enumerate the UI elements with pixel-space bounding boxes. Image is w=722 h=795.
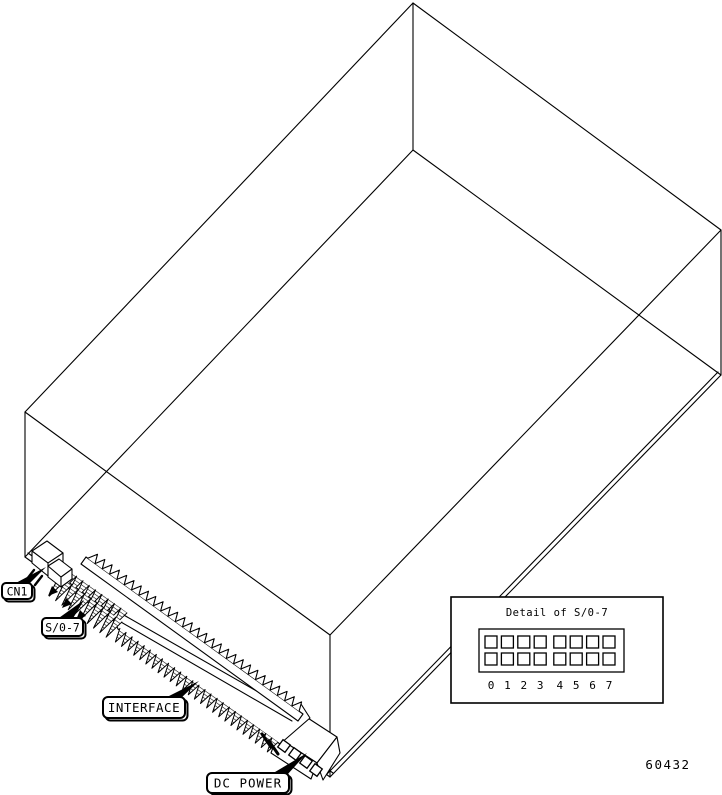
jumper-position-label-5: 5 [573, 679, 580, 692]
jumper-pin-7-row2 [603, 653, 615, 665]
jumper-pin-4-row1 [554, 636, 566, 648]
jumper-pin-7-row1 [603, 636, 615, 648]
s07-label: S/0-7 [45, 621, 80, 635]
jumper-pin-4-row2 [554, 653, 566, 665]
callout-cn1: CN1 [2, 567, 46, 602]
jumper-position-label-0: 0 [488, 679, 495, 692]
jumper-pin-3-row2 [534, 653, 546, 665]
cn1-label: CN1 [7, 585, 28, 599]
cn1-pin-2 [35, 576, 42, 585]
pin-header-row [81, 554, 303, 721]
jumper-pin-6-row2 [587, 653, 599, 665]
jumper-pin-2-row1 [518, 636, 530, 648]
edge-top-front-right [330, 230, 721, 635]
isometric-drive-diagram: CN1 S/0-7 INTERFACE DC POWER Detail of S… [0, 0, 722, 795]
figure-canvas: CN1 S/0-7 INTERFACE DC POWER Detail of S… [0, 0, 722, 795]
jumper-pin-2-row2 [518, 653, 530, 665]
jumper-pin-1-row2 [501, 653, 513, 665]
edge-bottom-rear-right [413, 150, 721, 375]
interface-label: INTERFACE [108, 700, 180, 715]
edge-top-left [25, 3, 413, 412]
jumper-position-label-3: 3 [537, 679, 544, 692]
interface-body [108, 606, 310, 744]
jumper-pin-3-row1 [534, 636, 546, 648]
edge-bottom-front-right [330, 375, 721, 777]
detail-box-title: Detail of S/0-7 [506, 607, 608, 619]
interface-connector [108, 606, 310, 754]
jumper-pin-5-row1 [570, 636, 582, 648]
jumper-pin-6-row1 [587, 636, 599, 648]
jumper-pin-5-row2 [570, 653, 582, 665]
jumper-position-label-4: 4 [556, 679, 563, 692]
jumper-pin-0-row1 [485, 636, 497, 648]
edge-top-right [413, 3, 721, 230]
jumper-position-label-2: 2 [520, 679, 527, 692]
jumper-position-label-1: 1 [504, 679, 511, 692]
figure-number: 60432 [645, 757, 690, 772]
edge-bottom-rear-left [25, 150, 413, 557]
jumper-position-label-6: 6 [589, 679, 596, 692]
detail-box: Detail of S/0-7 01234567 [451, 597, 663, 703]
dc-power-label: DC POWER [214, 776, 282, 791]
jumper-pin-1-row1 [501, 636, 513, 648]
edge-top-front-left [25, 412, 330, 635]
jumper-pin-0-row2 [485, 653, 497, 665]
edge-bottom-front-right-double [327, 372, 718, 774]
jumper-position-label-7: 7 [606, 679, 613, 692]
